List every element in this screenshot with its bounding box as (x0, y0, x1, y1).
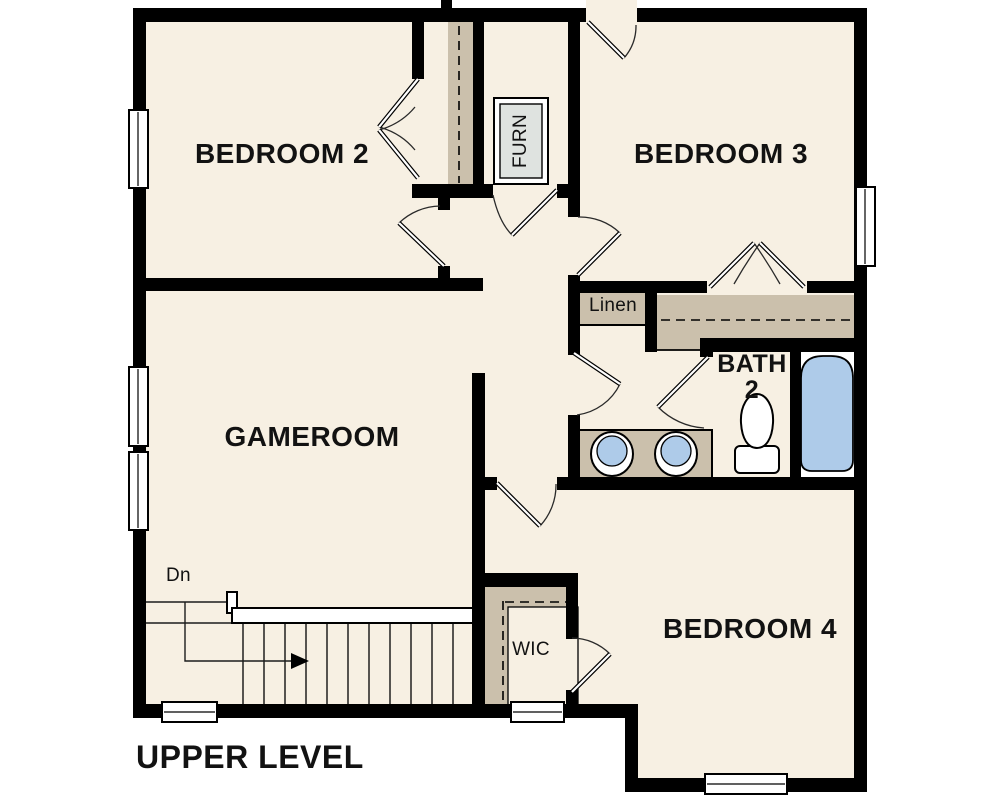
window (705, 774, 787, 794)
gameroom-label: GAMEROOM (192, 422, 432, 451)
wic-label: WIC (503, 640, 559, 660)
stair-handrail (232, 608, 473, 623)
window (129, 110, 148, 188)
linen-label: Linen (578, 296, 648, 316)
stairs-down-label: Dn (166, 566, 191, 586)
bedroom4-label: BEDROOM 4 (630, 614, 870, 643)
page-title: UPPER LEVEL (136, 741, 364, 775)
window (511, 702, 564, 722)
sink-icon (655, 432, 697, 476)
window (162, 702, 217, 722)
bedroom2-label: BEDROOM 2 (162, 139, 402, 168)
bath2-label: BATH 2 (706, 351, 798, 404)
bedroom2-closet-shelf (448, 22, 473, 187)
window (129, 452, 148, 530)
window (129, 367, 148, 446)
bedroom3-label: BEDROOM 3 (601, 139, 841, 168)
bath2-label-line2: 2 (706, 377, 798, 403)
floor-plan-upper-level: BEDROOM 2 BEDROOM 3 GAMEROOM BEDROOM 4 B… (0, 0, 1000, 800)
bath2-label-line1: BATH (706, 351, 798, 377)
bathtub-icon (801, 356, 853, 471)
window (856, 187, 875, 266)
furnace-label: FURN (500, 101, 542, 181)
sink-icon (591, 432, 633, 476)
